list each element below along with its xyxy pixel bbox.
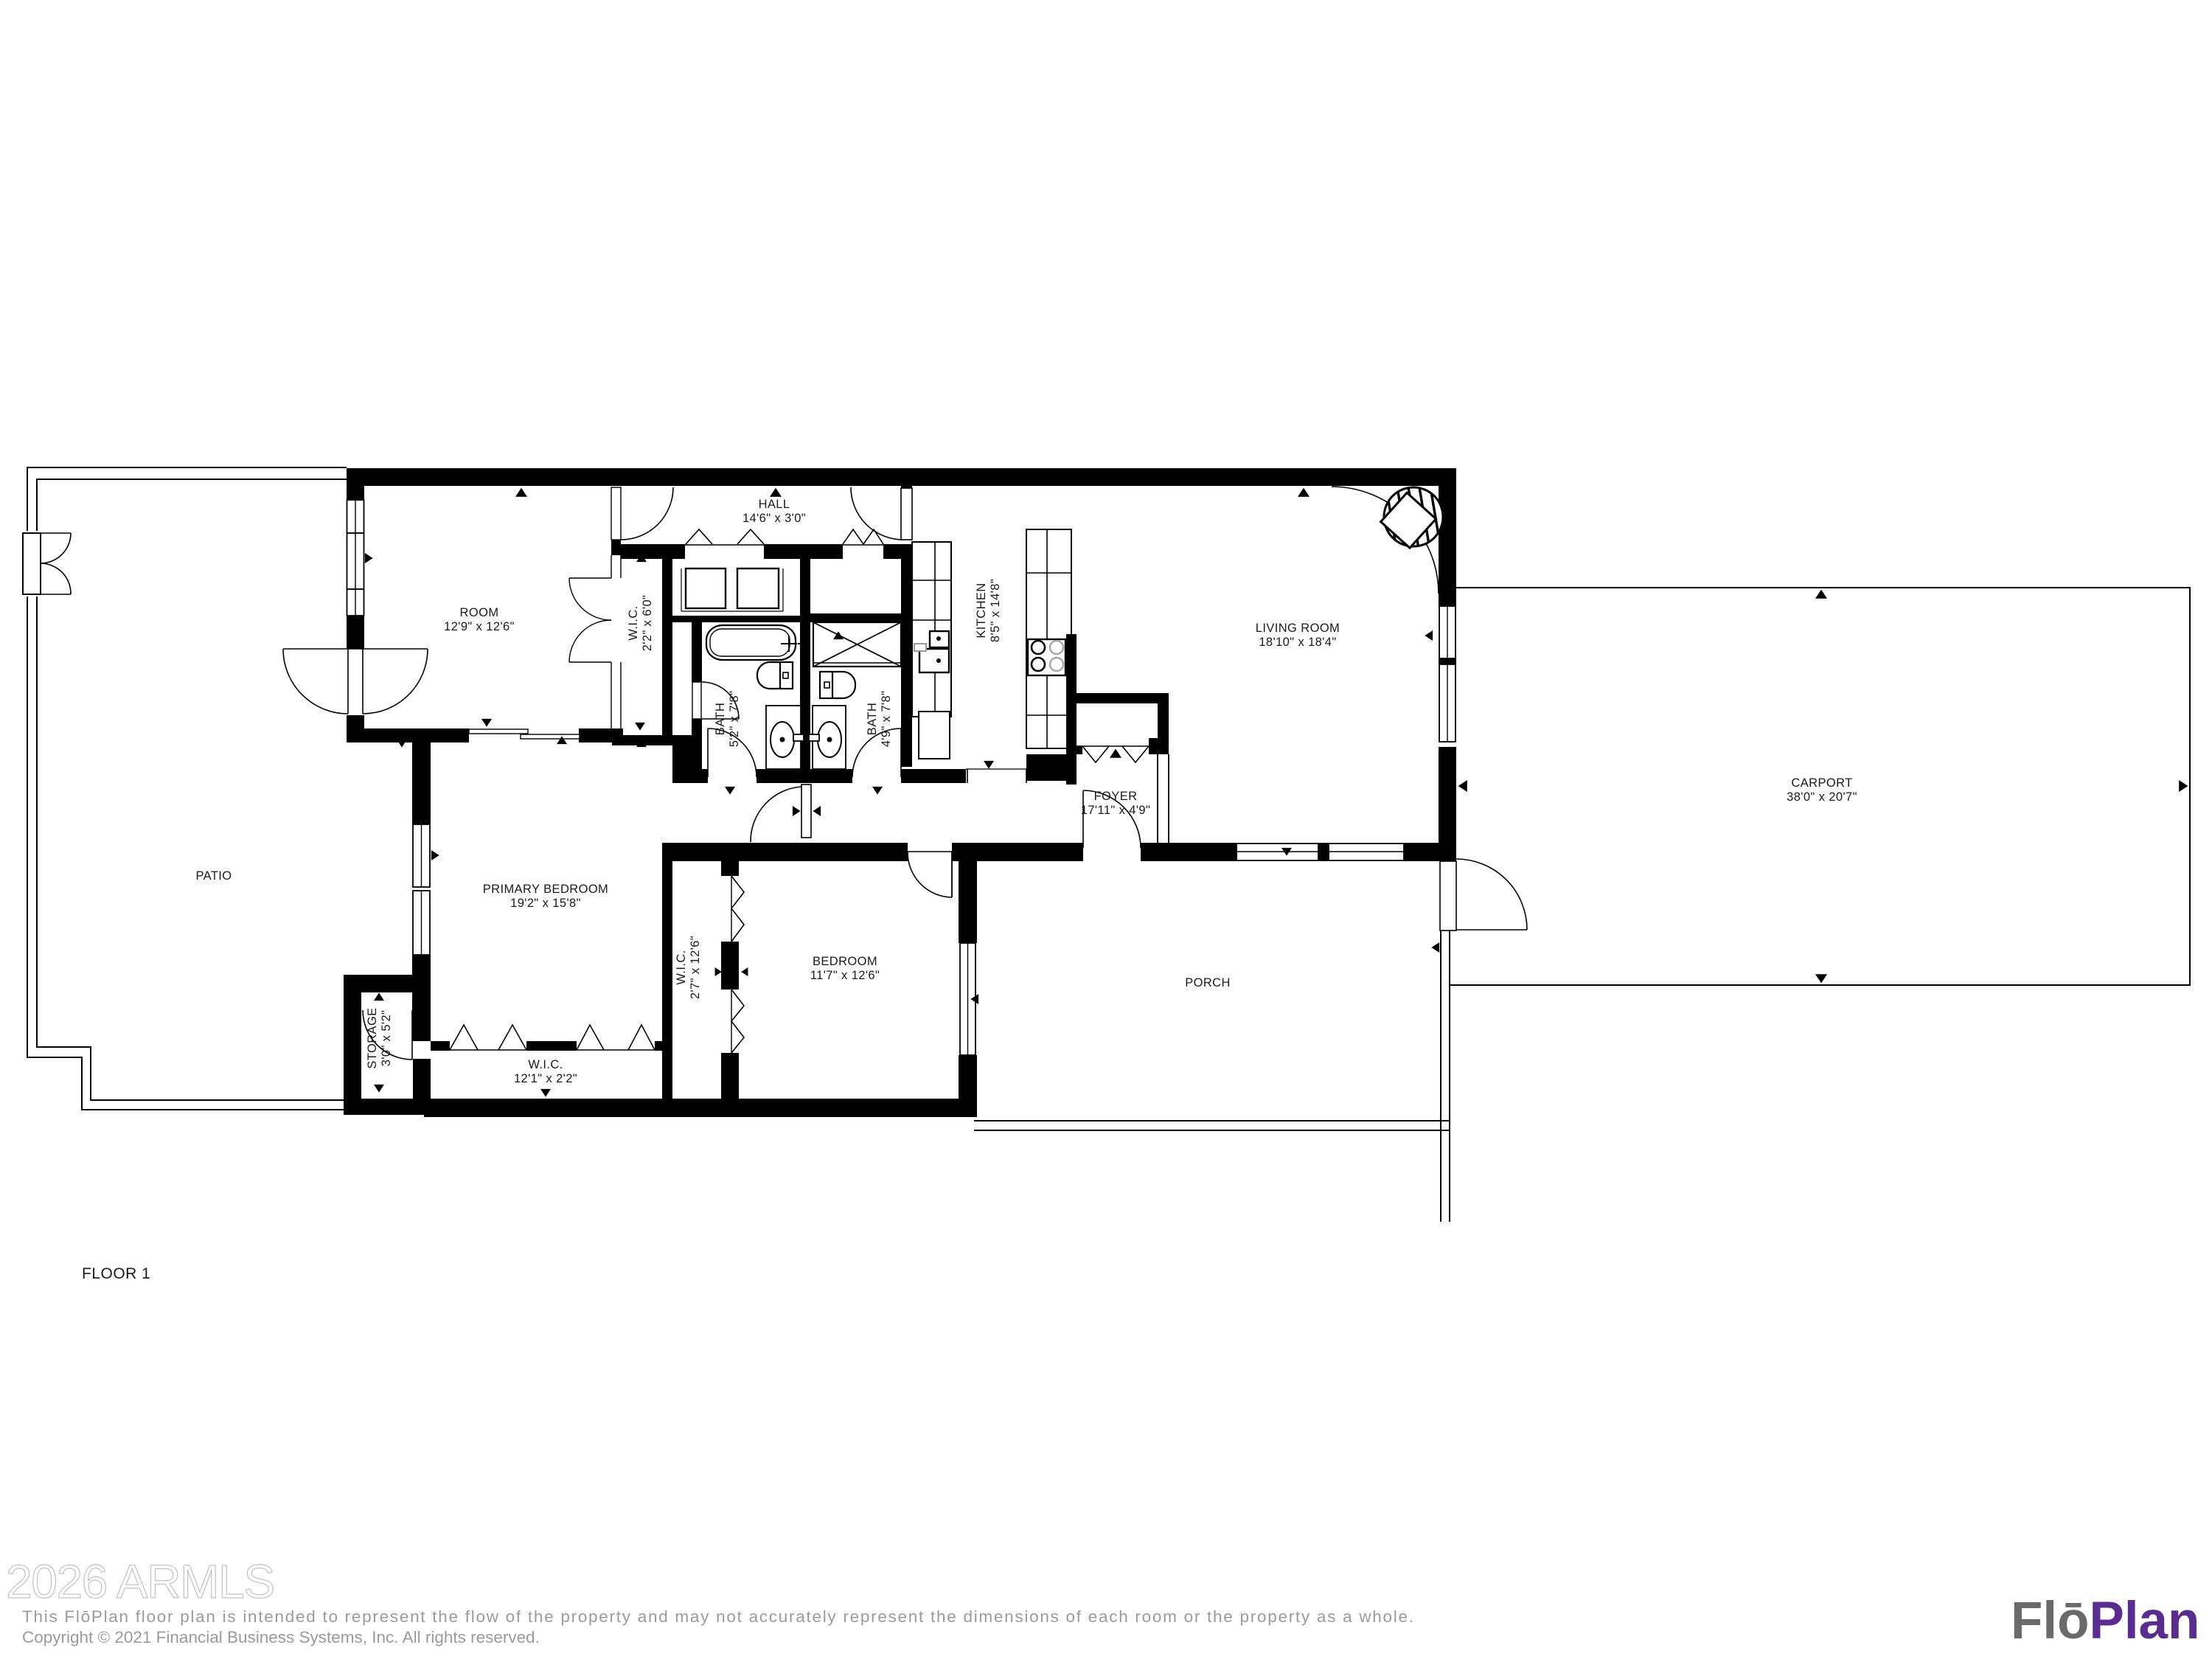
- svg-text:12'1" x 2'2": 12'1" x 2'2": [514, 1072, 577, 1085]
- svg-text:CARPORT: CARPORT: [1791, 776, 1852, 790]
- svg-text:12'9" x 12'6": 12'9" x 12'6": [444, 620, 515, 633]
- svg-text:11'7" x 12'6": 11'7" x 12'6": [810, 969, 880, 982]
- svg-text:Copyright © 2021 Financial Bus: Copyright © 2021 Financial Business Syst…: [22, 1628, 540, 1646]
- svg-text:HALL: HALL: [759, 498, 790, 511]
- svg-text:38'0" x 20'7": 38'0" x 20'7": [1787, 790, 1857, 804]
- svg-text:14'6" x 3'0": 14'6" x 3'0": [742, 512, 806, 525]
- svg-text:KITCHEN8'5" x 14'8": KITCHEN8'5" x 14'8": [975, 579, 1002, 642]
- svg-text:PATIO: PATIO: [195, 869, 232, 883]
- svg-text:STORAGE3'0" x 5'2": STORAGE3'0" x 5'2": [366, 1007, 393, 1068]
- svg-text:ROOM: ROOM: [460, 606, 499, 619]
- svg-text:FLOOR 1: FLOOR 1: [82, 1265, 150, 1282]
- svg-text:BEDROOM: BEDROOM: [813, 955, 877, 968]
- svg-text:PORCH: PORCH: [1185, 976, 1231, 990]
- svg-text:FlōPlan: FlōPlan: [2011, 1592, 2199, 1650]
- svg-text:This FlōPlan floor plan is int: This FlōPlan floor plan is intended to r…: [22, 1607, 1413, 1626]
- svg-text:17'11" x 4'9": 17'11" x 4'9": [1081, 804, 1150, 817]
- svg-text:LIVING ROOM: LIVING ROOM: [1256, 622, 1340, 635]
- svg-text:2026 ARMLS: 2026 ARMLS: [6, 1555, 277, 1608]
- svg-text:PRIMARY BEDROOM: PRIMARY BEDROOM: [483, 883, 608, 896]
- svg-text:19'2" x 15'8": 19'2" x 15'8": [510, 897, 581, 910]
- svg-text:W.I.C.: W.I.C.: [528, 1058, 563, 1071]
- svg-text:18'10" x 18'4": 18'10" x 18'4": [1259, 636, 1336, 649]
- svg-text:FOYER: FOYER: [1094, 790, 1138, 803]
